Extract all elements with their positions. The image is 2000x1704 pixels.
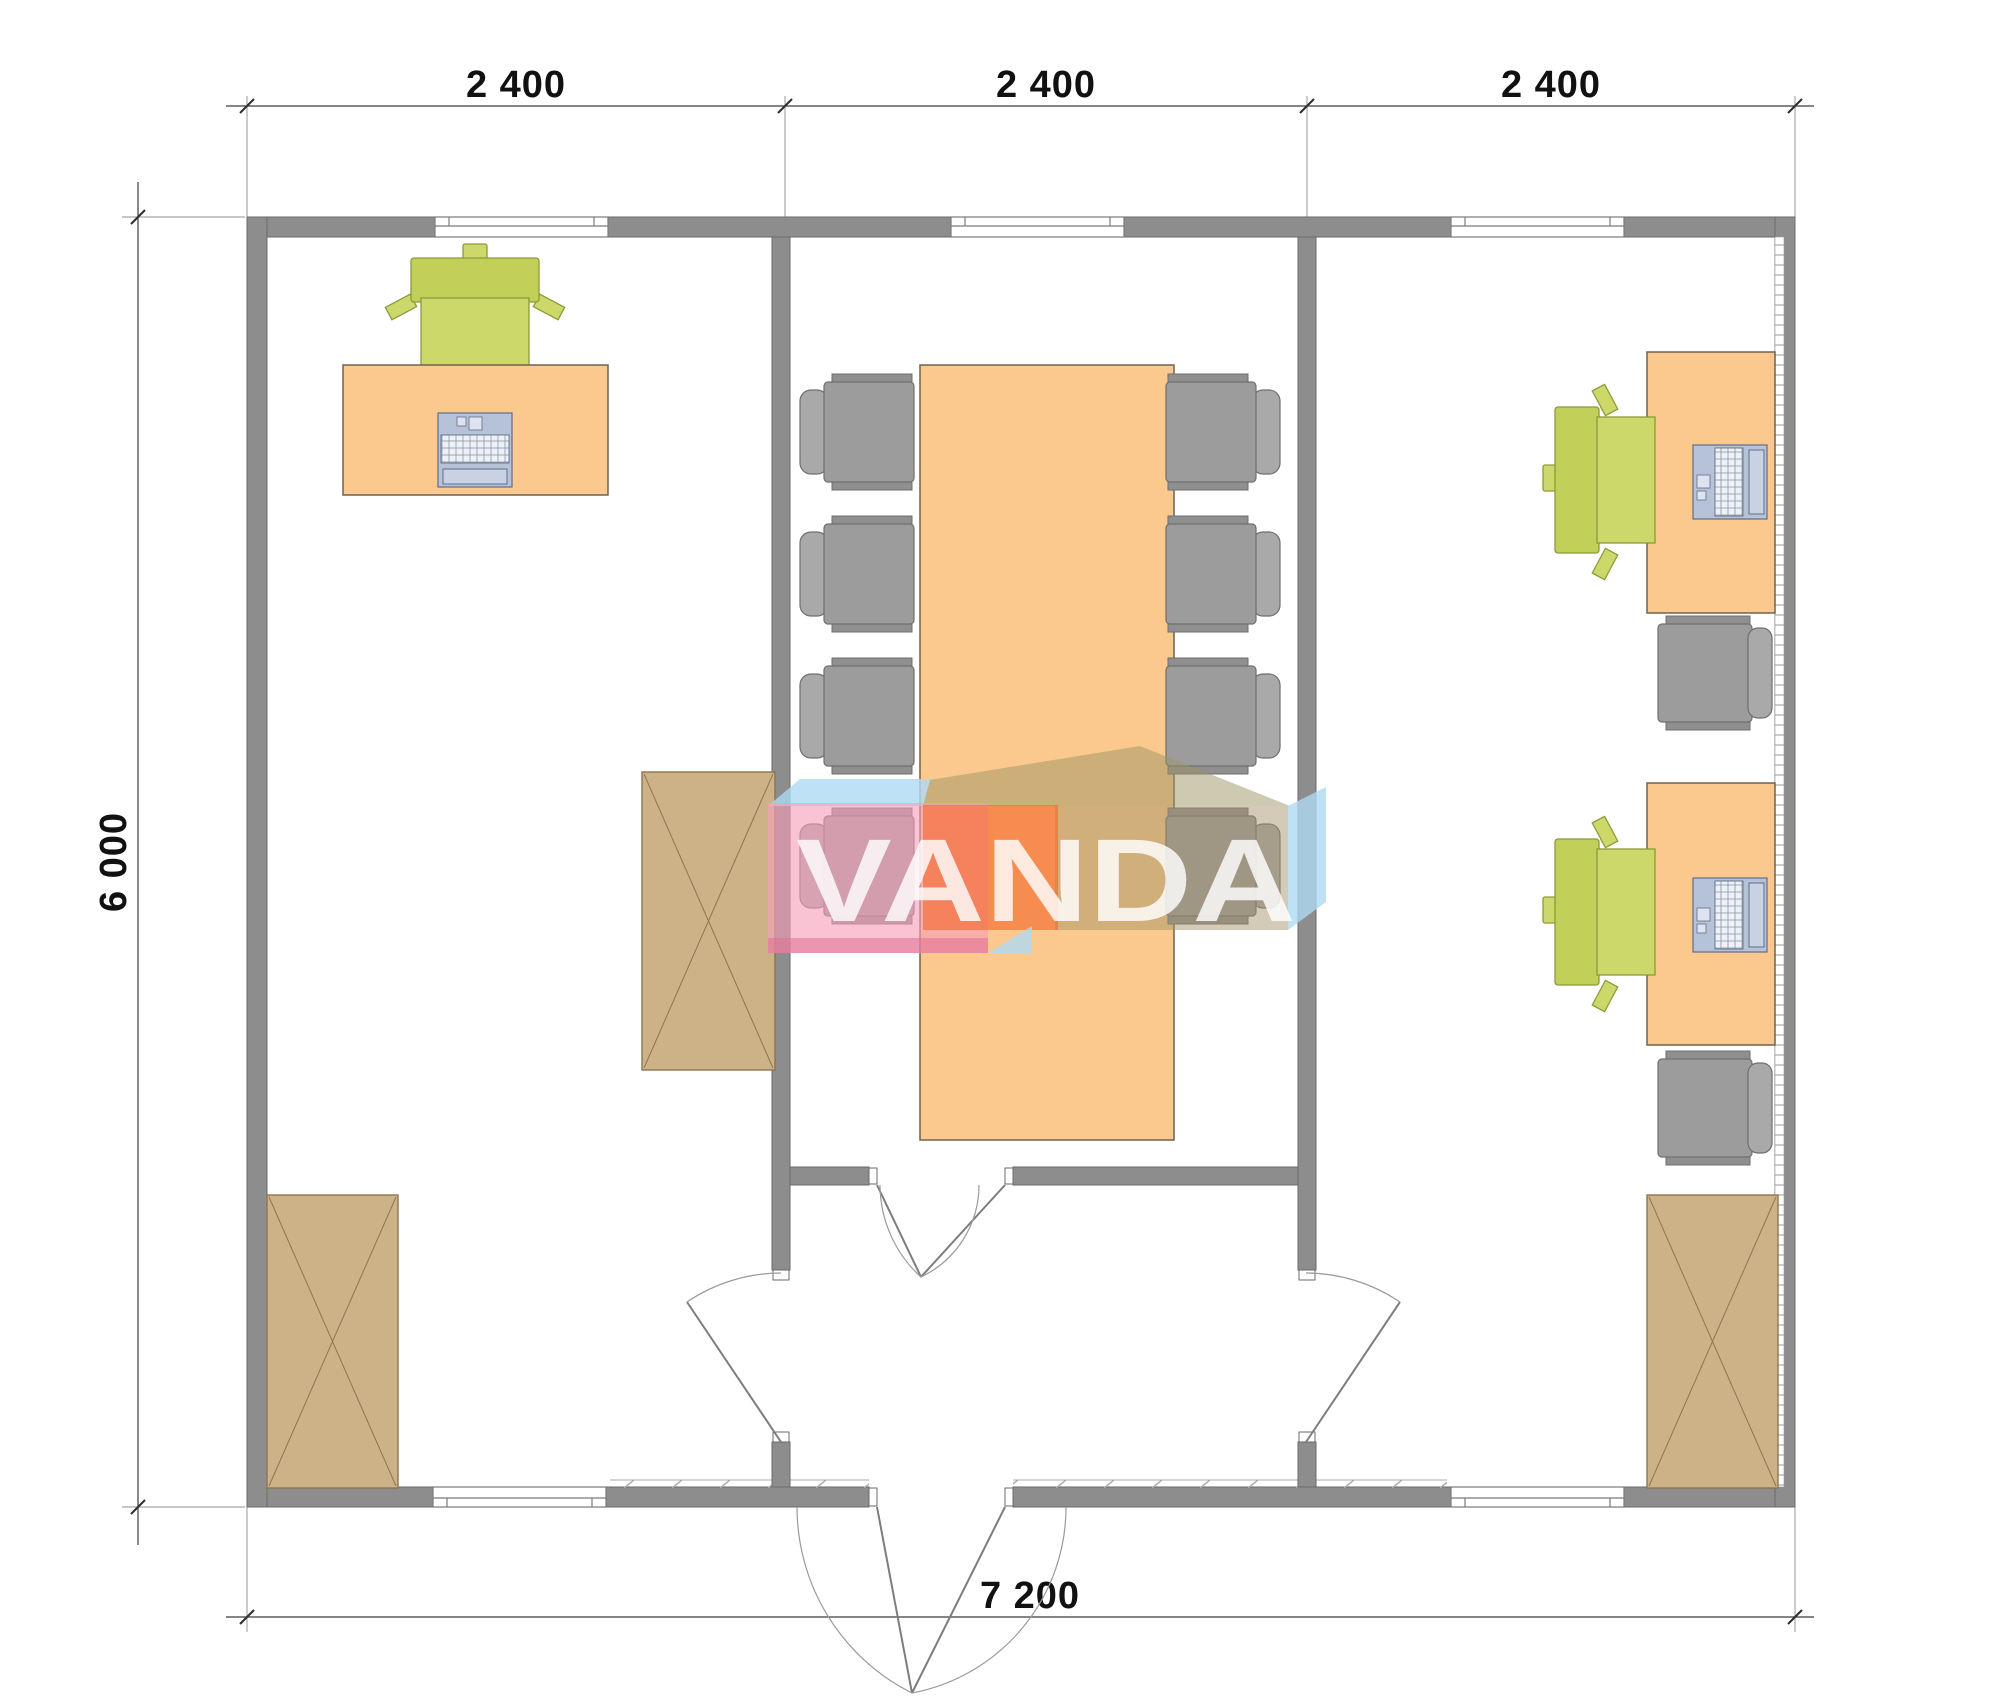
dim-label-top-right: 2 400 bbox=[1501, 64, 1601, 106]
bottom-wall-segment bbox=[606, 1487, 869, 1507]
right-office-door-leaf bbox=[1306, 1302, 1400, 1442]
interior-wall-1-stub bbox=[772, 1442, 790, 1487]
conference-chair bbox=[800, 516, 914, 632]
laptop bbox=[1693, 445, 1767, 519]
watermark-text: VANDA bbox=[796, 815, 1296, 947]
green-office-chair bbox=[1543, 816, 1655, 1011]
bottom-wall-segment bbox=[1624, 1487, 1775, 1507]
watermark-blue-face bbox=[768, 779, 932, 806]
vestibule-wall-right bbox=[1013, 1167, 1298, 1185]
threshold-hatch bbox=[610, 1480, 869, 1488]
left-wall bbox=[247, 217, 267, 1507]
dim-label-top-left: 2 400 bbox=[466, 64, 566, 106]
top-wall-segment bbox=[1124, 217, 1451, 237]
conference-chair bbox=[1166, 516, 1280, 632]
door-jamb-cap bbox=[773, 1270, 789, 1280]
interior-double-door-leaf bbox=[921, 1185, 1005, 1277]
laptop bbox=[438, 413, 512, 487]
window-bottom-left-room bbox=[433, 1487, 606, 1507]
floor-plan-canvas: 2 400 2 400 2 400 6 000 7 200 bbox=[0, 0, 2000, 1704]
conference-chair bbox=[1166, 658, 1280, 774]
interior-wall-2 bbox=[1298, 237, 1316, 1270]
tall-cabinet bbox=[642, 772, 775, 1070]
laptop bbox=[1693, 878, 1767, 952]
top-wall-segment bbox=[1624, 217, 1795, 237]
furniture-meeting-room bbox=[800, 365, 1280, 1140]
window-top-left-room bbox=[435, 217, 608, 237]
window-top-right-room bbox=[1451, 217, 1624, 237]
floor-plan-page: 2 400 2 400 2 400 6 000 7 200 bbox=[0, 0, 2000, 1704]
dim-label-bottom: 7 200 bbox=[980, 1575, 1080, 1617]
door-jamb-cap bbox=[869, 1488, 877, 1506]
door-jamb-cap bbox=[1299, 1270, 1315, 1280]
left-office-door-swing bbox=[687, 1273, 781, 1302]
bottom-wall-segment bbox=[1013, 1487, 1451, 1507]
conference-chair bbox=[800, 374, 914, 490]
window-bottom-right-room bbox=[1451, 1487, 1624, 1507]
bottom-wall-segment bbox=[267, 1487, 433, 1507]
door-jamb-cap bbox=[1005, 1168, 1013, 1184]
watermark-logo: VANDA bbox=[768, 746, 1326, 953]
interior-double-door-leaf bbox=[877, 1185, 921, 1277]
interior-door-swing bbox=[921, 1185, 979, 1277]
furniture-right-office bbox=[1543, 352, 1778, 1488]
entrance-door-leaf bbox=[877, 1507, 912, 1693]
green-office-chair bbox=[385, 244, 564, 366]
wardrobe bbox=[1647, 1195, 1778, 1488]
top-wall-segment bbox=[608, 217, 951, 237]
furniture-left-office bbox=[267, 244, 775, 1488]
door-jamb-cap bbox=[869, 1168, 877, 1184]
green-office-chair bbox=[1543, 384, 1655, 579]
corner-wardrobe bbox=[267, 1195, 398, 1488]
top-wall-segment bbox=[247, 217, 435, 237]
dim-label-left: 6 000 bbox=[93, 812, 135, 912]
window-top-middle-room bbox=[951, 217, 1124, 237]
interior-wall-1 bbox=[772, 237, 790, 1270]
gray-side-chair bbox=[1658, 1051, 1772, 1165]
threshold-hatch bbox=[1013, 1480, 1447, 1488]
interior-wall-2-stub bbox=[1298, 1442, 1316, 1487]
dim-label-top-middle: 2 400 bbox=[996, 64, 1096, 106]
gray-side-chair bbox=[1658, 616, 1772, 730]
vestibule-wall-left bbox=[790, 1167, 869, 1185]
door-jamb-cap bbox=[1005, 1488, 1013, 1506]
conference-chair bbox=[1166, 374, 1280, 490]
right-office-door-swing bbox=[1306, 1273, 1400, 1302]
conference-chair bbox=[800, 658, 914, 774]
left-office-door-leaf bbox=[687, 1302, 781, 1442]
